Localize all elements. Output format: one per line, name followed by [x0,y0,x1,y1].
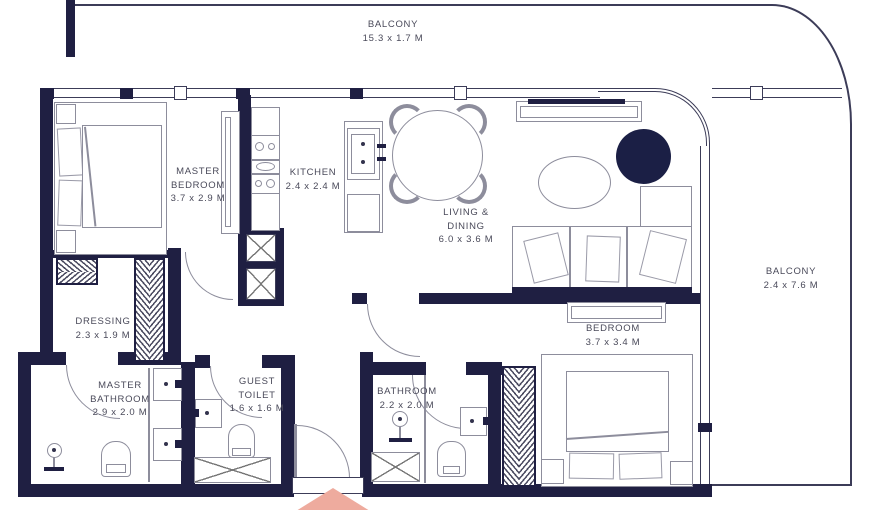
wardrobe-hatched [502,366,536,487]
room-label-dressing: DRESSING2.3 x 1.9 M [75,315,130,342]
balcony-bottom-edge-line [710,484,852,486]
toilet-base [232,448,251,456]
shower-stand [44,467,64,471]
tv-screen [528,99,625,104]
basin-dot [164,382,168,386]
shower-dot [52,448,56,452]
burner [268,143,275,150]
shaft-duct [246,234,276,262]
wardrobe-cabinet-inner [225,117,231,227]
coffee-table-oval [538,156,611,209]
wall-mbath-top-a [18,352,66,365]
burner [266,179,275,188]
window-mullion [174,86,187,100]
room-label-balcony-top: BALCONY15.3 x 1.7 M [363,18,424,45]
dresser-inner [571,306,662,319]
balcony-corner-wall [66,0,75,57]
basin-faucet [483,417,491,425]
mattress [566,371,669,452]
room-label-master-bedroom: MASTERBEDROOM3.7 x 2.9 M [171,165,226,206]
wall-bathroom-top-a [371,362,426,375]
room-label-balcony-right: BALCONY2.4 x 7.6 M [764,265,819,292]
dining-chair [451,104,487,140]
island-shelf [347,194,380,232]
shower-dot [398,417,402,421]
basin-faucet [191,409,199,417]
basin-faucet [175,440,183,448]
sink-basin-oval [256,162,275,171]
round-side-table [616,129,671,184]
sofa-chaise [640,186,692,230]
glass-wall-east [700,146,710,488]
wardrobe-hatched [134,258,165,362]
basin-dot [205,411,209,415]
room-label-guest-toilet: GUESTTOILET1.6 x 1.6 M [230,375,285,416]
wall-hall [168,248,181,362]
wall-west [40,92,53,364]
island-sink-inner [351,134,375,174]
basin-dot [164,442,168,446]
dining-chair [389,104,425,140]
room-label-kitchen: KITCHEN2.4 x 2.4 M [286,166,341,193]
nightstand [541,459,564,484]
glass-band-balcony [712,88,842,98]
nightstand [56,104,76,124]
wall-post [120,88,133,99]
entrance-marker [296,488,370,510]
wall-post [698,423,712,432]
nightstand [670,461,693,485]
headboard-cushion [57,180,83,227]
wall-suite-top-a [352,293,367,304]
faucet-handle [377,157,386,161]
dining-chair [389,168,425,204]
door-entrance-leaf [294,424,297,480]
wall-post [350,88,363,99]
basin-dot [470,419,474,423]
wall-south-left [18,484,294,497]
toilet-base [443,466,460,474]
shower-stand [389,438,412,442]
nightstand [56,230,76,253]
shaft-duct [246,268,276,300]
floor-plan: BALCONY15.3 x 1.7 M MASTERBEDROOM3.7 x 2… [0,0,880,510]
shower-tray [194,457,271,483]
wall-gtoilet-top-a [195,355,210,368]
room-label-bedroom: BEDROOM3.7 x 3.4 M [586,322,641,349]
burner [255,142,264,151]
pillow [619,452,663,479]
sofa-divider [626,227,628,287]
headboard-cushion [57,127,83,176]
closet-hatched [56,258,98,285]
shower-tray [371,452,420,482]
pillow [569,453,614,480]
faucet-dot [361,142,365,146]
tv-console-inner [520,106,638,118]
sofa-divider [569,227,571,287]
room-label-living-dining: LIVING &DINING6.0 x 3.6 M [439,206,494,247]
room-label-master-bathroom: MASTERBATHROOM2.9 x 2.0 M [90,379,150,420]
faucet-dot [361,160,365,164]
wall-west-lower [18,352,31,497]
faucet-handle [377,144,386,148]
wall-mbath-gtoilet [181,362,195,487]
toilet-base [106,464,126,473]
burner [255,180,262,187]
sofa-cushion [585,235,621,282]
window-mullion [750,86,763,100]
window-mullion [454,86,467,100]
sofa-back-rail [512,287,692,294]
dining-chair [451,168,487,204]
room-label-bathroom: BATHROOM2.2 x 2.0 M [377,385,437,412]
basin-faucet [175,380,183,388]
